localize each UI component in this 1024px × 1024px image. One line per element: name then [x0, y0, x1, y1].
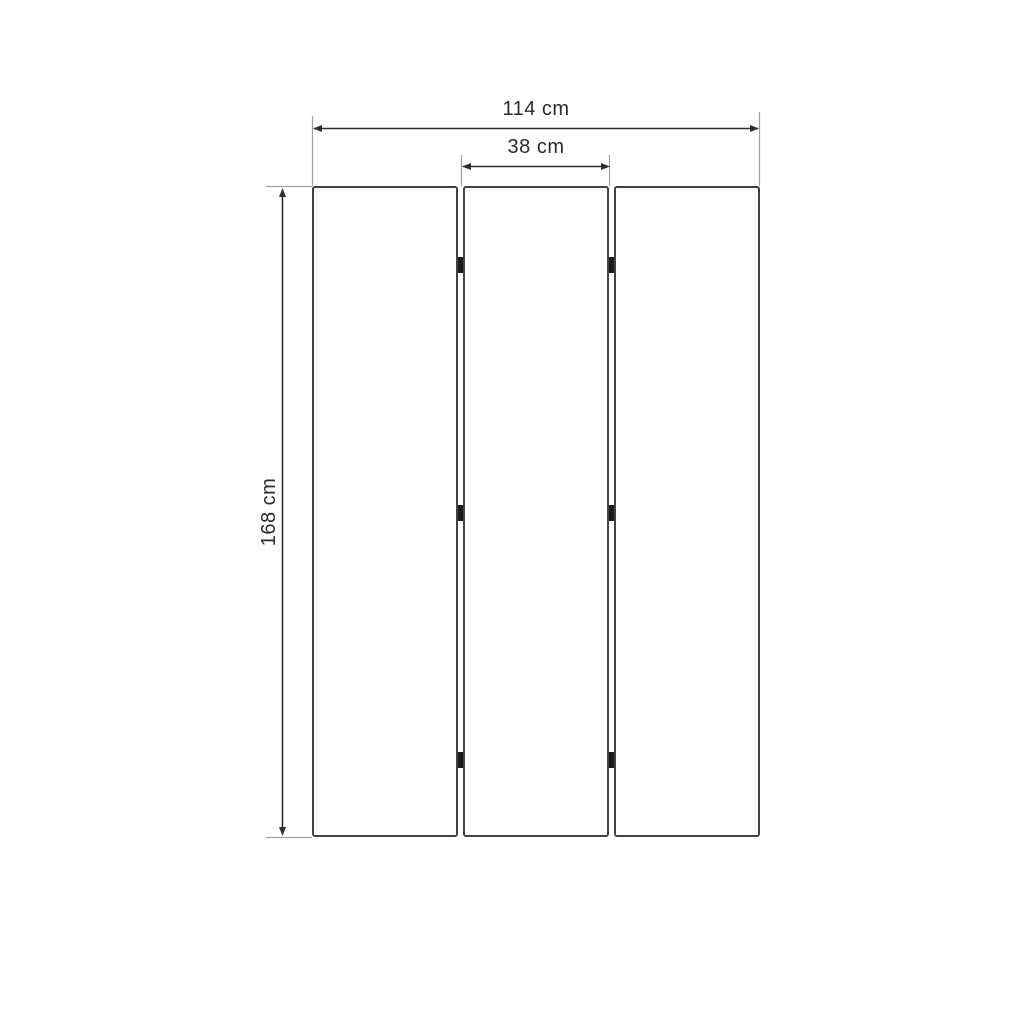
panel-width-label: 38 cm	[462, 134, 610, 160]
arrowhead-icon-panel-width-left	[462, 163, 471, 170]
panel-screen-dimension-diagram: 114 cm 38 cm 168 cm	[0, 0, 1024, 1024]
hinge-right-joint-middle	[609, 505, 614, 521]
arrowhead-icon-panel-width-right	[601, 163, 610, 170]
hinge-left-joint-top	[458, 257, 463, 273]
arrowhead-icon-height-top	[279, 188, 286, 197]
arrowhead-icon-height-bottom	[279, 827, 286, 836]
hinge-left-joint-bottom	[458, 752, 463, 768]
panel-right	[615, 187, 759, 836]
hinge-right-joint-bottom	[609, 752, 614, 768]
hinge-left-joint-middle	[458, 505, 463, 521]
arrowhead-icon-total-width-left	[313, 125, 322, 132]
panel-left	[313, 187, 457, 836]
panel-center	[464, 187, 608, 836]
hinge-right-joint-top	[609, 257, 614, 273]
height-label: 168 cm	[256, 452, 282, 572]
total-width-label: 114 cm	[312, 96, 760, 122]
arrowhead-icon-total-width-right	[750, 125, 759, 132]
